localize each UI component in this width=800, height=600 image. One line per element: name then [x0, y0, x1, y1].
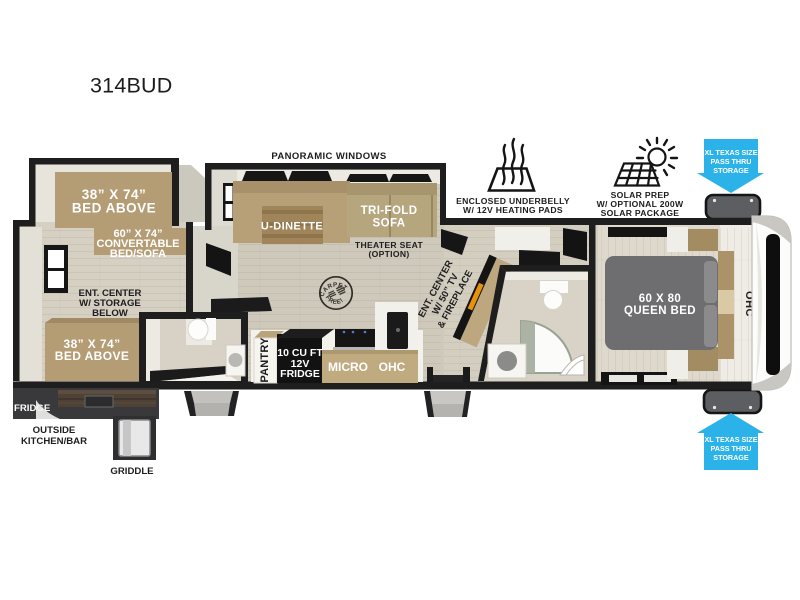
svg-text:W/ 12V HEATING PADS: W/ 12V HEATING PADS: [463, 205, 563, 215]
svg-text:TRI-FOLD: TRI-FOLD: [361, 205, 418, 217]
svg-text:XL TEXAS SIZE: XL TEXAS SIZE: [705, 148, 758, 157]
svg-text:PASS THRU: PASS THRU: [711, 157, 752, 166]
svg-text:OUTSIDE: OUTSIDE: [33, 425, 76, 436]
svg-text:FRIDGE: FRIDGE: [280, 368, 320, 380]
svg-text:BED ABOVE: BED ABOVE: [72, 201, 156, 216]
svg-text:PASS THRU: PASS THRU: [711, 444, 752, 453]
svg-text:STORAGE: STORAGE: [713, 453, 749, 462]
svg-text:BED ABOVE: BED ABOVE: [55, 349, 130, 363]
svg-text:GRIDDLE: GRIDDLE: [110, 466, 154, 477]
svg-text:PANTRY: PANTRY: [259, 337, 271, 383]
svg-text:BED/SOFA: BED/SOFA: [110, 248, 166, 260]
svg-text:SOFA: SOFA: [373, 218, 406, 230]
svg-text:STORAGE: STORAGE: [713, 166, 749, 175]
svg-text:OHC: OHC: [379, 360, 406, 374]
svg-text:MICRO: MICRO: [328, 360, 368, 374]
svg-text:SOLAR PACKAGE: SOLAR PACKAGE: [601, 208, 680, 218]
svg-text:(OPTION): (OPTION): [368, 249, 409, 259]
svg-text:60 X 80: 60 X 80: [639, 293, 681, 305]
svg-text:314BUD: 314BUD: [90, 74, 172, 98]
svg-text:BELOW: BELOW: [92, 308, 129, 319]
svg-text:XL TEXAS SIZE: XL TEXAS SIZE: [705, 435, 758, 444]
svg-text:U-DINETTE: U-DINETTE: [261, 221, 323, 233]
svg-text:QUEEN BED: QUEEN BED: [624, 305, 696, 317]
svg-text:PANORAMIC WINDOWS: PANORAMIC WINDOWS: [271, 151, 386, 162]
svg-text:KITCHEN/BAR: KITCHEN/BAR: [21, 436, 87, 447]
